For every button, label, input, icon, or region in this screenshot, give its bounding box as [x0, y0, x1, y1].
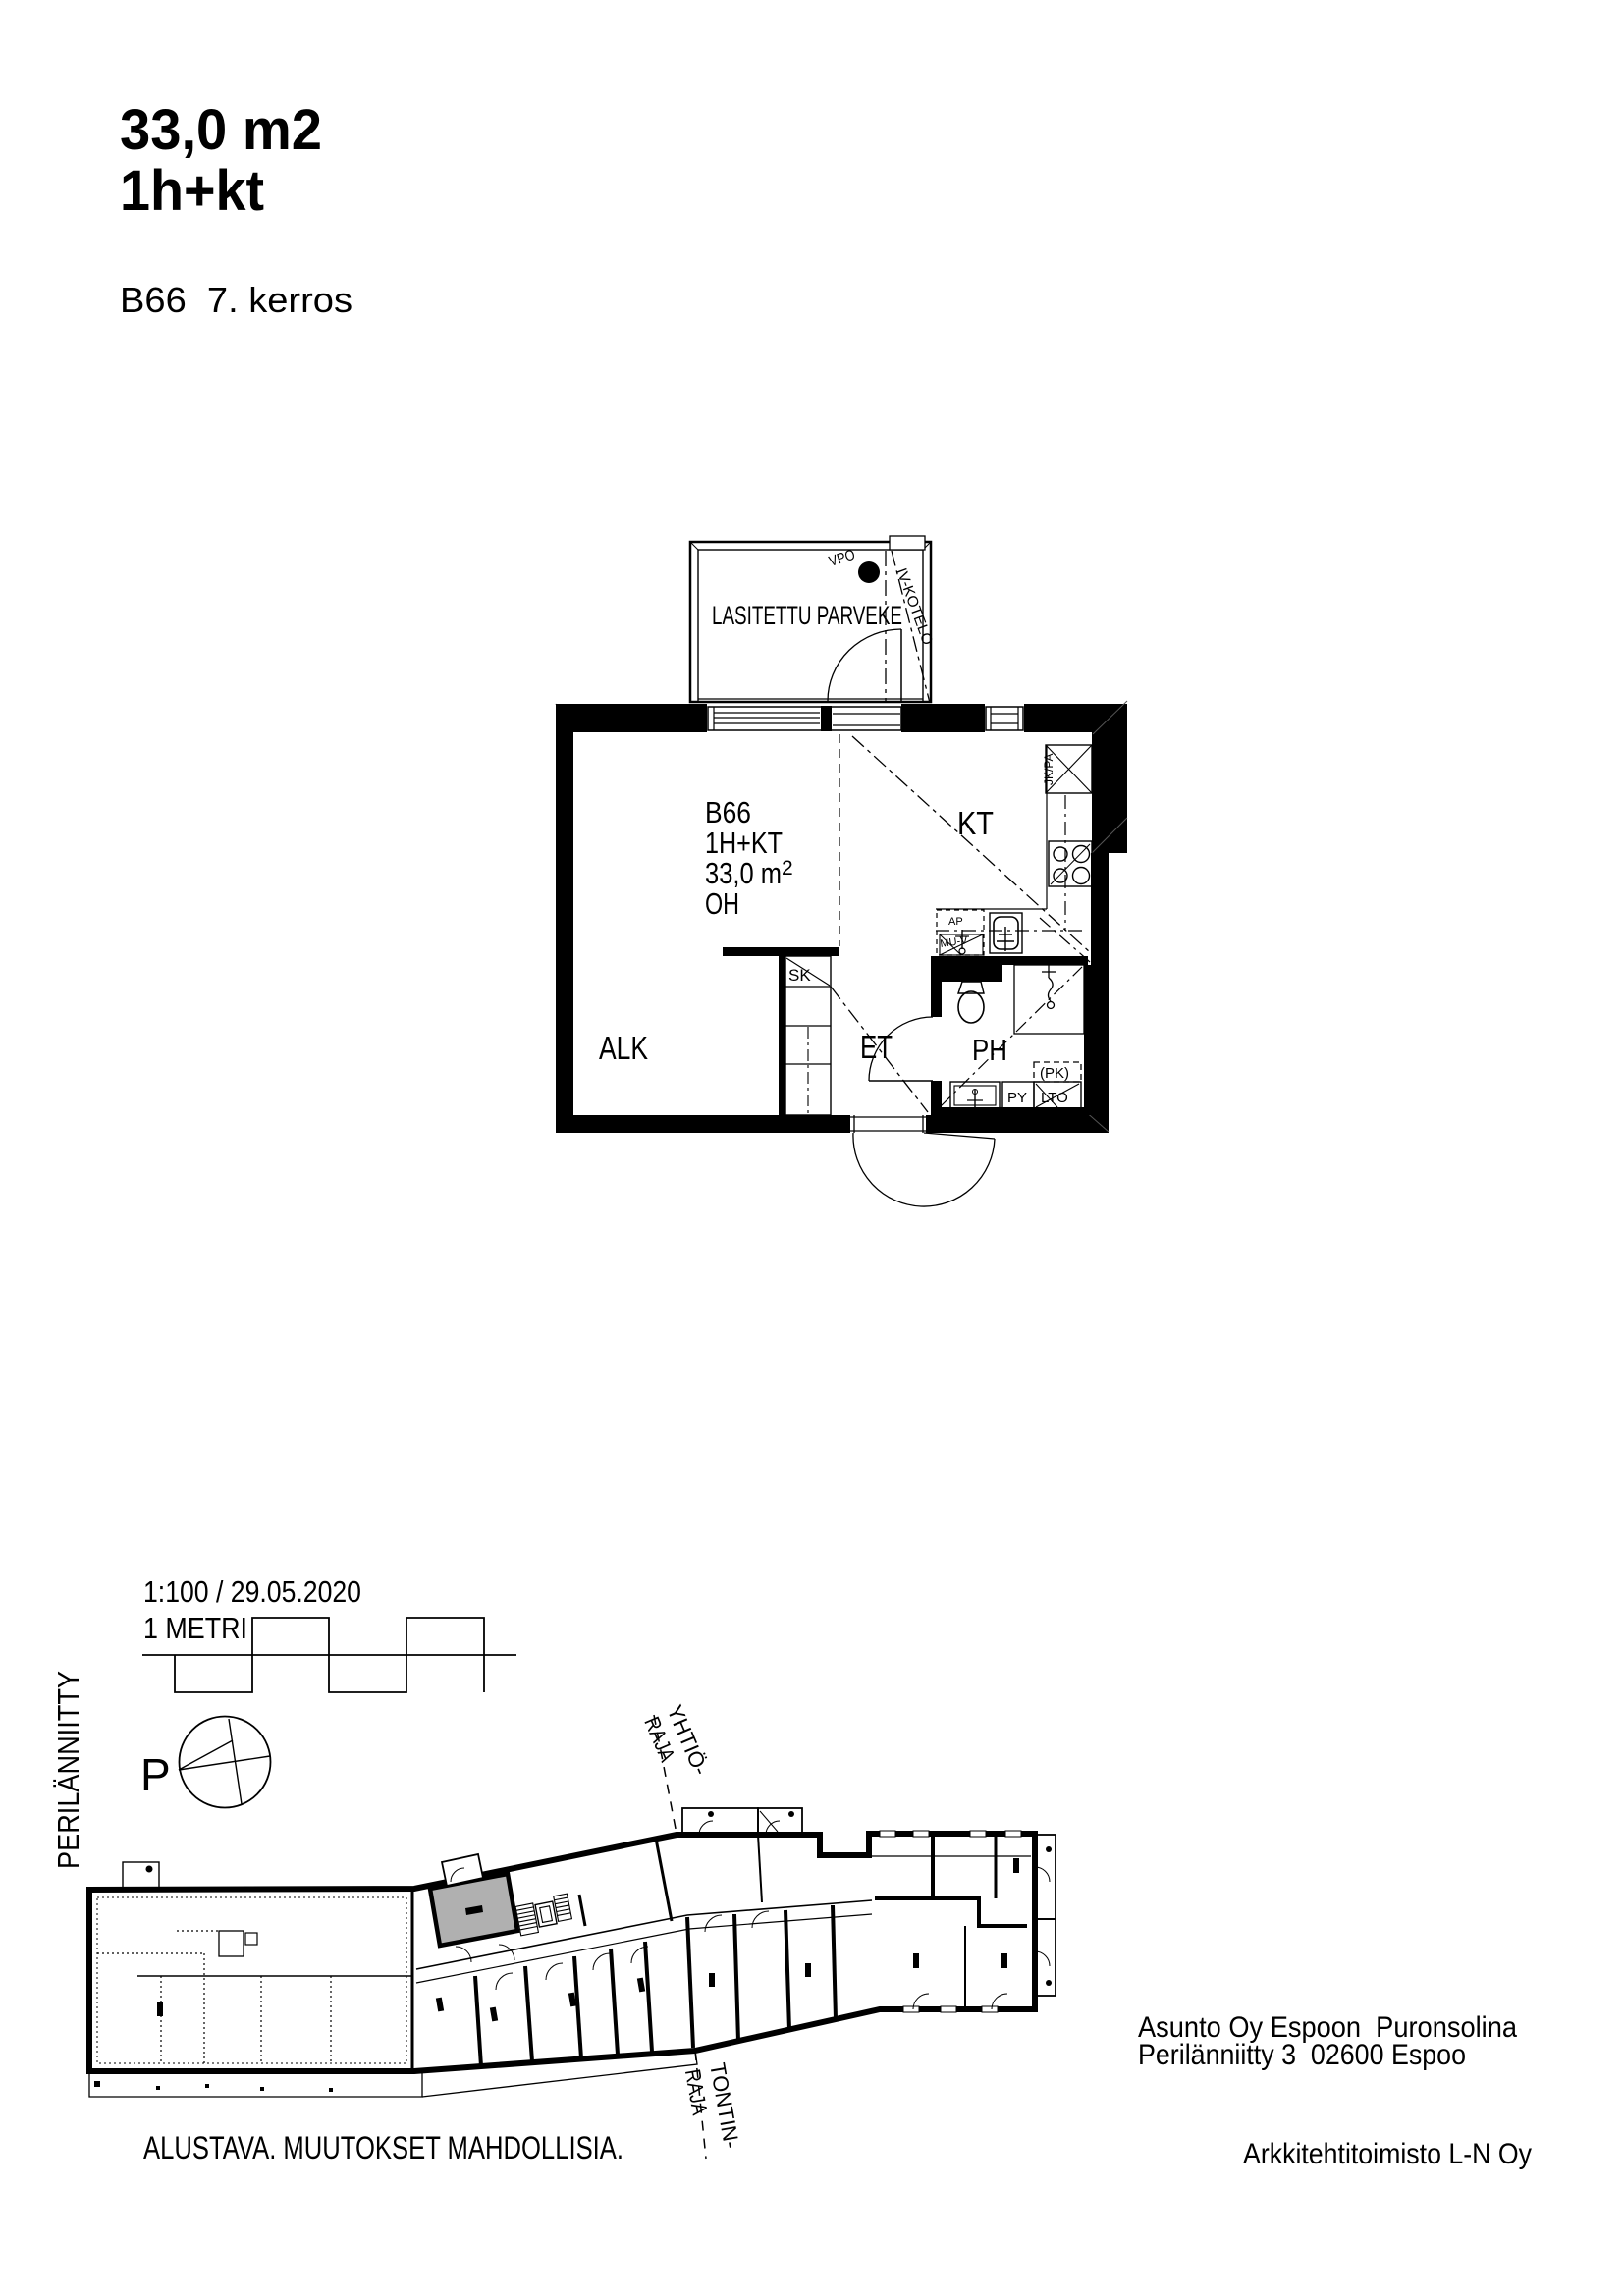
svg-text:LASITETTU PARVEKE: LASITETTU PARVEKE	[712, 601, 902, 630]
svg-text:1 METRI: 1 METRI	[143, 1611, 247, 1645]
svg-text:ET: ET	[860, 1029, 893, 1065]
svg-text:PY: PY	[1007, 1090, 1027, 1106]
svg-text:PERILÄNNIITTY: PERILÄNNIITTY	[51, 1671, 85, 1869]
svg-text:P: P	[140, 1749, 171, 1800]
svg-text:OH: OH	[705, 886, 739, 921]
svg-text:JK/PA: JK/PA	[1042, 754, 1056, 785]
svg-text:ALUSTAVA. MUUTOKSET MAHDOLLISI: ALUSTAVA. MUUTOKSET MAHDOLLISIA.	[143, 2130, 623, 2165]
svg-text:LTO: LTO	[1041, 1090, 1068, 1106]
svg-text:1H+KT: 1H+KT	[705, 826, 783, 860]
svg-text:33,0 m2: 33,0 m2	[705, 856, 793, 890]
svg-text:B66 7. kerros: B66 7. kerros	[120, 280, 352, 320]
svg-text:Arkkitehtitoimisto L-N Oy: Arkkitehtitoimisto L-N Oy	[1243, 2138, 1532, 2170]
svg-text:1:100 / 29.05.2020: 1:100 / 29.05.2020	[143, 1575, 361, 1609]
svg-text:PH: PH	[972, 1033, 1007, 1067]
svg-text:1h+kt: 1h+kt	[120, 159, 264, 223]
svg-text:(PK): (PK)	[1040, 1065, 1069, 1082]
svg-text:33,0 m2: 33,0 m2	[120, 98, 322, 162]
svg-text:ALK: ALK	[599, 1030, 648, 1066]
svg-text:Perilänniitty 3 02600 Espoo: Perilänniitty 3 02600 Espoo	[1138, 2039, 1466, 2071]
svg-text:AP: AP	[948, 916, 963, 928]
svg-text:KT: KT	[957, 805, 994, 841]
svg-text:B66: B66	[705, 795, 751, 829]
svg-text:SK: SK	[788, 966, 811, 985]
